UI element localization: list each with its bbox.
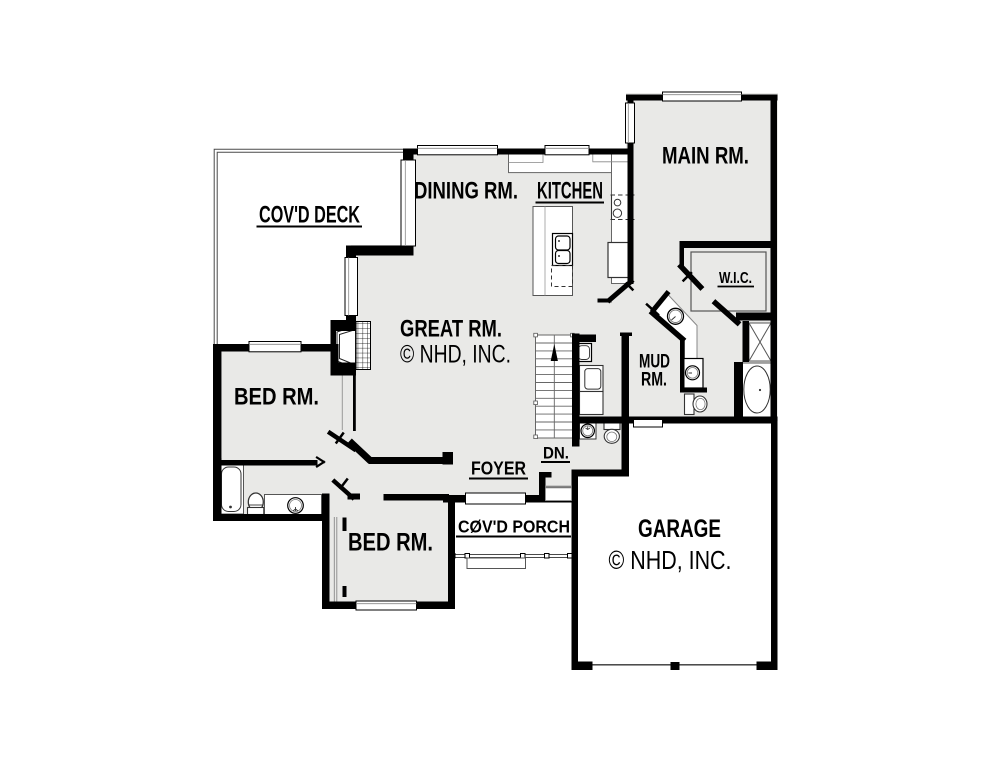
svg-text:KITCHEN: KITCHEN [537,178,603,205]
svg-text:© NHD, INC.: © NHD, INC. [609,545,732,575]
svg-text:FOYER: FOYER [471,458,526,479]
svg-text:BED RM.: BED RM. [348,529,433,557]
svg-text:DN.: DN. [543,445,569,463]
svg-text:RM.: RM. [641,369,667,391]
svg-text:© NHD, INC.: © NHD, INC. [400,341,511,369]
svg-text:COV'D DECK: COV'D DECK [259,202,360,229]
svg-text:BED RM.: BED RM. [234,384,319,411]
svg-text:DINING RM.: DINING RM. [414,178,518,205]
svg-text:MAIN RM.: MAIN RM. [662,143,749,170]
svg-text:GREAT RM.: GREAT RM. [400,316,502,343]
svg-text:W.I.C.: W.I.C. [719,270,752,287]
svg-text:CØV'D PORCH: CØV'D PORCH [458,517,570,537]
svg-text:GARAGE: GARAGE [638,515,721,543]
